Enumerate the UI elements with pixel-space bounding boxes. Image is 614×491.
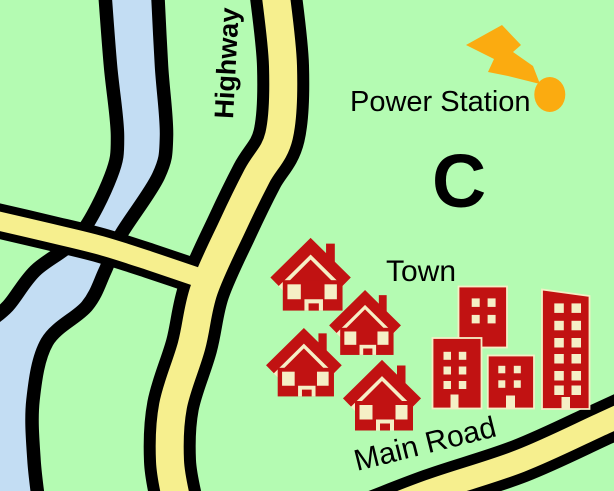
svg-text:Highway: Highway <box>209 7 245 119</box>
svg-text:Power Station: Power Station <box>350 86 531 118</box>
svg-text:C: C <box>432 139 486 223</box>
svg-text:Town: Town <box>386 255 456 288</box>
